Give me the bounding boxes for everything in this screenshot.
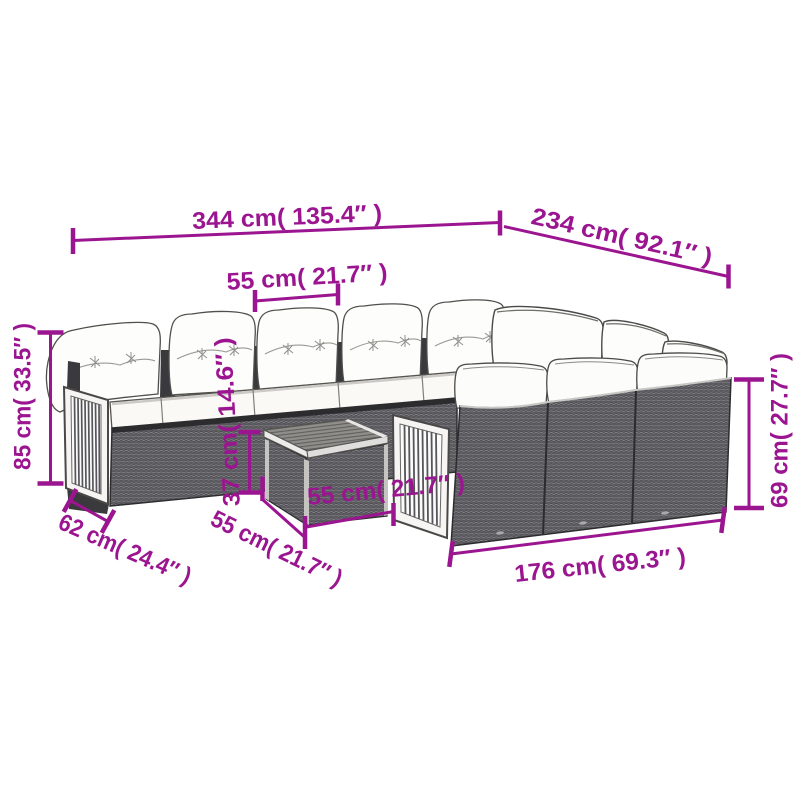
svg-text:69 cm( 27.7″ ): 69 cm( 27.7″ ) <box>767 353 794 508</box>
svg-text:85 cm( 33.5″ ): 85 cm( 33.5″ ) <box>10 323 37 470</box>
